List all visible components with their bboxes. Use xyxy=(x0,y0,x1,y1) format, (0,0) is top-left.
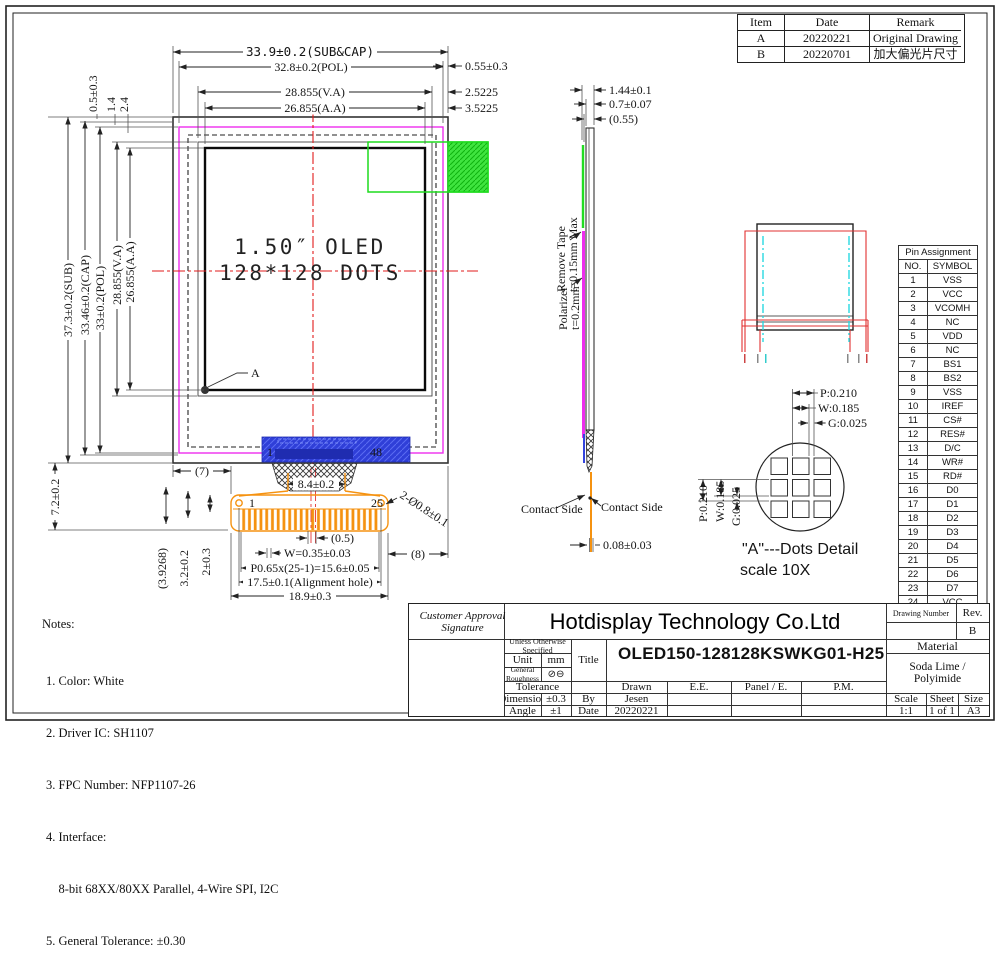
title-label: Title xyxy=(571,639,606,681)
revision-cell: B xyxy=(738,47,785,62)
pin-symbol: CS# xyxy=(928,414,977,427)
dim-label: 33.9±0.2(SUB&CAP) xyxy=(243,44,377,59)
pin-number: 15 xyxy=(899,470,928,483)
sheet-value: 1 of 1 xyxy=(926,705,958,716)
pin-row: 20D4 xyxy=(899,540,977,554)
dim-label: 2.4 xyxy=(117,97,131,112)
size-label: Size xyxy=(958,693,989,705)
pin-table-header: NO. SYMBOL xyxy=(899,260,977,274)
pin-number: 8 xyxy=(899,372,928,385)
unit-label: Unit xyxy=(504,653,541,667)
svg-text:0.5±0.3: 0.5±0.3 xyxy=(86,75,100,112)
notes-section: Notes: 1. Color: White 2. Driver IC: SH1… xyxy=(42,592,278,974)
dim-label: 0.7±0.07 xyxy=(609,97,652,111)
svg-text:(7): (7) xyxy=(195,464,209,478)
dim-label: (0.55) xyxy=(609,112,638,126)
dim-label: (8) xyxy=(407,547,429,561)
sub-cap-outline xyxy=(173,117,448,463)
svg-text:P:0.210: P:0.210 xyxy=(696,485,710,522)
svg-text:(8): (8) xyxy=(411,547,425,561)
pin-row: 21D5 xyxy=(899,554,977,568)
angle-tolerance: ±1 xyxy=(541,705,571,716)
pin-row: 14WR# xyxy=(899,456,977,470)
dim-label: (3.9268) xyxy=(155,548,169,589)
dim-label: 2-Ø0.8±0.1 xyxy=(397,488,451,530)
svg-text:P0.65x(25-1)=15.6±0.05: P0.65x(25-1)=15.6±0.05 xyxy=(250,561,369,575)
pin-row: 9VSS xyxy=(899,386,977,400)
pin-number: 22 xyxy=(899,568,928,581)
pin-row: 4NC xyxy=(899,316,977,330)
pin-number: 19 xyxy=(899,526,928,539)
pin-symbol: NC xyxy=(928,344,977,357)
fpc-pin25-label: 25 xyxy=(371,496,383,510)
pin-row: 22D6 xyxy=(899,568,977,582)
pin-number: 23 xyxy=(899,582,928,595)
dim-label: 26.855(A.A) xyxy=(123,238,137,306)
dim-label: 32.8±0.2(POL) xyxy=(271,60,351,74)
customer-approval-label: Customer Approval Signature xyxy=(409,604,516,639)
dim-label: P:0.210 xyxy=(696,485,710,522)
dots-detail-caption: "A"---Dots Detail xyxy=(742,541,858,558)
unit-value: mm xyxy=(541,653,571,667)
pin-number: 4 xyxy=(899,316,928,329)
svg-text:33.46±0.2(CAP): 33.46±0.2(CAP) xyxy=(78,255,92,335)
display-dots-text: 128*128 DOTS xyxy=(219,261,401,285)
scale-value: 1:1 xyxy=(886,705,926,716)
svg-text:33±0.2(POL): 33±0.2(POL) xyxy=(93,266,107,330)
angle-label: Angle xyxy=(504,705,541,716)
side-view: 1.44±0.1 0.7±0.07 (0.55) Remove Tape t=0… xyxy=(521,83,663,552)
svg-text:32.8±0.2(POL): 32.8±0.2(POL) xyxy=(274,60,347,74)
material-value: Soda Lime / Polyimide xyxy=(886,653,989,693)
pm-header: P.M. xyxy=(801,681,886,693)
ee-header: E.E. xyxy=(667,681,731,693)
svg-text:G:0.025: G:0.025 xyxy=(729,487,743,526)
pin-symbol: D0 xyxy=(928,484,977,497)
panel-header: Panel / E. xyxy=(731,681,801,693)
pin-symbol: VSS xyxy=(928,386,977,399)
revision-cell: 20220701 xyxy=(785,47,870,62)
dim-label: 37.3±0.2(SUB) xyxy=(61,260,75,340)
svg-text:8.4±0.2: 8.4±0.2 xyxy=(298,477,335,491)
revision-cell: 加大偏光片尺寸 xyxy=(870,47,961,62)
scale-label: Scale xyxy=(886,693,926,705)
dim-label: (0.5) xyxy=(331,531,354,545)
revision-table: Item Date Remark A 20220221 Original Dra… xyxy=(737,14,965,63)
pin-row: 17D1 xyxy=(899,498,977,512)
dim-label: G:0.025 xyxy=(729,487,743,526)
dim-label: 0.5±0.3 xyxy=(86,75,100,112)
pin-row: 1VSS xyxy=(899,274,977,288)
svg-text:18.9±0.3: 18.9±0.3 xyxy=(289,589,332,603)
pin-row: 11CS# xyxy=(899,414,977,428)
rear-view xyxy=(742,224,868,363)
pin-symbol: VDD xyxy=(928,330,977,343)
dim-label: 0.55±0.3 xyxy=(465,59,508,73)
dim-label: 28.855(V.A) xyxy=(281,85,349,99)
pin-row: 2VCC xyxy=(899,288,977,302)
dim-label: W:0.185 xyxy=(818,401,859,415)
dim-label: 17.5±0.1(Alignment hole) xyxy=(243,575,377,589)
pin-symbol: D2 xyxy=(928,512,977,525)
pin-number: 21 xyxy=(899,554,928,567)
corner-label: A xyxy=(251,366,260,380)
svg-text:(3.9268): (3.9268) xyxy=(155,548,169,589)
pin-table-body: 1VSS2VCC3VCOMH4NC5VDD6NC7BS18BS29VSS10IR… xyxy=(899,274,977,623)
pin-number: 12 xyxy=(899,428,928,441)
revision-cell: A xyxy=(738,31,785,47)
dim-label: W:0.185 xyxy=(713,481,727,522)
pin-number: 14 xyxy=(899,456,928,469)
pin-number: 10 xyxy=(899,400,928,413)
svg-text:2±0.3: 2±0.3 xyxy=(199,548,213,576)
engineering-drawing-page: { "revision_table": { "headers": ["Item"… xyxy=(0,0,1000,727)
revision-col-item: Item xyxy=(738,15,785,31)
polarizer-outline xyxy=(179,127,443,453)
pin-row: 7BS1 xyxy=(899,358,977,372)
revision-col-remark: Remark xyxy=(870,15,961,31)
dim-label: 1.4 xyxy=(104,97,118,112)
svg-text:t=0.2mm: t=0.2mm xyxy=(568,286,582,330)
dim-label: 33.46±0.2(CAP) xyxy=(78,250,92,340)
pin-row: 15RD# xyxy=(899,470,977,484)
pin-row: 13D/C xyxy=(899,442,977,456)
pin-number: 17 xyxy=(899,498,928,511)
dim-label: 3.5225 xyxy=(465,101,498,115)
svg-text:2.4: 2.4 xyxy=(117,97,131,112)
contact-side-right-label: Contact Side xyxy=(601,500,663,514)
pin-number: 16 xyxy=(899,484,928,497)
svg-text:26.855(A.A): 26.855(A.A) xyxy=(123,241,137,302)
tolerance-label: Tolerance xyxy=(504,681,571,693)
roughness-symbol: ⊘⊖ xyxy=(541,667,571,681)
dim-label: 8.4±0.2 xyxy=(293,477,339,491)
svg-text:7.2±0.2: 7.2±0.2 xyxy=(48,479,62,516)
revision-col-date: Date xyxy=(785,15,870,31)
pin-symbol: D4 xyxy=(928,540,977,553)
dimension-tolerance: ±0.3 xyxy=(541,693,571,705)
dim-label: P:0.210 xyxy=(820,386,857,400)
pin-symbol: NC xyxy=(928,316,977,329)
display-size-text: 1.50″ OLED xyxy=(234,235,385,259)
pin-number: 9 xyxy=(899,386,928,399)
size-value: A3 xyxy=(958,705,989,716)
pin-number: 18 xyxy=(899,512,928,525)
dim-label: 0.08±0.03 xyxy=(603,538,652,552)
fpc-pin1-label: 1 xyxy=(249,496,255,510)
pin-symbol: BS1 xyxy=(928,358,977,371)
note-line: 3. FPC Number: NFP1107-26 xyxy=(46,779,278,792)
date-value: 20220221 xyxy=(606,705,667,716)
pin-row: 6NC xyxy=(899,344,977,358)
by-label: By xyxy=(571,693,606,705)
dimension-label: Dimension xyxy=(504,693,541,705)
pin-symbol: VSS xyxy=(928,274,977,287)
pin-number: 13 xyxy=(899,442,928,455)
pin-symbol: RES# xyxy=(928,428,977,441)
pin-col-symbol: SYMBOL xyxy=(928,260,977,273)
spec-header: Unless Otherwise Specified xyxy=(504,639,571,653)
svg-text:2-Ø0.8±0.1: 2-Ø0.8±0.1 xyxy=(397,488,451,530)
ic-pin1-label: 1 xyxy=(267,445,273,459)
rear-view-tiny-marks xyxy=(744,354,868,363)
svg-text:26.855(A.A): 26.855(A.A) xyxy=(284,101,345,115)
svg-text:28.855(V.A): 28.855(V.A) xyxy=(110,245,124,305)
polarizer-label2: t=0.2mm xyxy=(568,286,582,330)
pin-symbol: D1 xyxy=(928,498,977,511)
pin-number: 11 xyxy=(899,414,928,427)
company-name: Hotdisplay Technology Co.Ltd xyxy=(504,604,886,639)
dim-label: 2±0.3 xyxy=(199,548,213,576)
tape-hatch xyxy=(448,142,488,192)
contact-side-left-label: Contact Side xyxy=(521,502,583,516)
pin-row: 3VCOMH xyxy=(899,302,977,316)
drawn-header: Drawn xyxy=(606,681,667,693)
title-block: Customer Approval Signature Hotdisplay T… xyxy=(408,603,990,717)
date-label: Date xyxy=(571,705,606,716)
note-line: 1. Color: White xyxy=(46,675,278,688)
pin-number: 1 xyxy=(899,274,928,287)
rev-label: Rev. xyxy=(956,604,989,622)
svg-text:t=0.15mm Max: t=0.15mm Max xyxy=(566,217,580,292)
dim-label: W=0.35±0.03 xyxy=(284,546,351,560)
svg-text:1.4: 1.4 xyxy=(104,97,118,112)
pin-row: 10IREF xyxy=(899,400,977,414)
pin-number: 20 xyxy=(899,540,928,553)
cap-dashed-outline xyxy=(188,135,436,447)
pin-number: 5 xyxy=(899,330,928,343)
svg-text:W:0.185: W:0.185 xyxy=(713,481,727,522)
ic-pin48-label: 48 xyxy=(370,445,382,459)
dim-label: 33±0.2(POL) xyxy=(93,264,107,332)
note-line: 2. Driver IC: SH1107 xyxy=(46,727,278,740)
pin-symbol: RD# xyxy=(928,470,977,483)
pin-col-no: NO. xyxy=(899,260,928,273)
dim-label: 28.855(V.A) xyxy=(110,241,124,309)
pin-row: 5VDD xyxy=(899,330,977,344)
notes-title: Notes: xyxy=(42,618,278,631)
driver-ic: 1 48 xyxy=(262,437,410,462)
pin-symbol: IREF xyxy=(928,400,977,413)
dim-label: (7) xyxy=(191,464,213,478)
pin-row: 19D3 xyxy=(899,526,977,540)
dim-label: G:0.025 xyxy=(828,416,867,430)
svg-text:17.5±0.1(Alignment hole): 17.5±0.1(Alignment hole) xyxy=(247,575,373,589)
rev-value: B xyxy=(956,622,989,639)
pin-number: 3 xyxy=(899,302,928,315)
dots-detail: P:0.210 W:0.185 G:0.025 P:0.210 W:0.185 … xyxy=(696,386,867,579)
svg-text:37.3±0.2(SUB): 37.3±0.2(SUB) xyxy=(61,263,75,337)
pin-row: 12RES# xyxy=(899,428,977,442)
note-line: 4. Interface: xyxy=(46,831,278,844)
alignment-hole-left xyxy=(236,500,242,506)
svg-text:28.855(V.A): 28.855(V.A) xyxy=(285,85,345,99)
pin-symbol: VCOMH xyxy=(928,302,977,315)
drawn-by-value: Jesen xyxy=(606,693,667,705)
pin-symbol: D5 xyxy=(928,554,977,567)
dim-label: 1.44±0.1 xyxy=(609,83,652,97)
dots-detail-scale: scale 10X xyxy=(740,562,811,579)
glass-tip xyxy=(586,430,594,472)
svg-text:33.9±0.2(SUB&CAP): 33.9±0.2(SUB&CAP) xyxy=(246,44,374,59)
pin-table-title: Pin Assignment xyxy=(899,246,977,260)
pin-row: 23D7 xyxy=(899,582,977,596)
note-line: 8-bit 68XX/80XX Parallel, 4-Wire SPI, I2… xyxy=(46,883,278,896)
note-line: 5. General Tolerance: ±0.30 xyxy=(46,935,278,948)
dim-label: 26.855(A.A) xyxy=(281,101,349,115)
pin-assignment-table: Pin Assignment NO. SYMBOL 1VSS2VCC3VCOMH… xyxy=(898,245,978,624)
pin-symbol: D6 xyxy=(928,568,977,581)
pin-number: 7 xyxy=(899,358,928,371)
pin-symbol: WR# xyxy=(928,456,977,469)
pin-row: 16D0 xyxy=(899,484,977,498)
roughness-label: General Roughness xyxy=(504,667,541,681)
dim-label: 3.2±0.2 xyxy=(177,550,191,587)
material-label: Material xyxy=(886,639,989,653)
pin-number: 2 xyxy=(899,288,928,301)
drawing-number-label: Drawing Number xyxy=(886,604,956,622)
remove-tape-label2: t=0.15mm Max xyxy=(566,217,580,292)
dim-label: 18.9±0.3 xyxy=(284,589,336,603)
sheet-label: Sheet xyxy=(926,693,958,705)
pin-symbol: VCC xyxy=(928,288,977,301)
dim-label: 2.5225 xyxy=(465,85,498,99)
dim-label: 7.2±0.2 xyxy=(48,474,62,520)
pin-row: 18D2 xyxy=(899,512,977,526)
pin-symbol: D7 xyxy=(928,582,977,595)
svg-text:3.2±0.2: 3.2±0.2 xyxy=(177,550,191,587)
dim-label: P0.65x(25-1)=15.6±0.05 xyxy=(246,561,374,575)
pin-symbol: BS2 xyxy=(928,372,977,385)
part-number: OLED150-128128KSWKG01-H25 xyxy=(606,639,898,669)
pin-number: 6 xyxy=(899,344,928,357)
revision-cell: Original Drawing xyxy=(870,31,961,47)
fpc-pins xyxy=(241,509,379,530)
pin-symbol: D/C xyxy=(928,442,977,455)
revision-cell: 20220221 xyxy=(785,31,870,47)
pin-row: 8BS2 xyxy=(899,372,977,386)
pin-symbol: D3 xyxy=(928,526,977,539)
